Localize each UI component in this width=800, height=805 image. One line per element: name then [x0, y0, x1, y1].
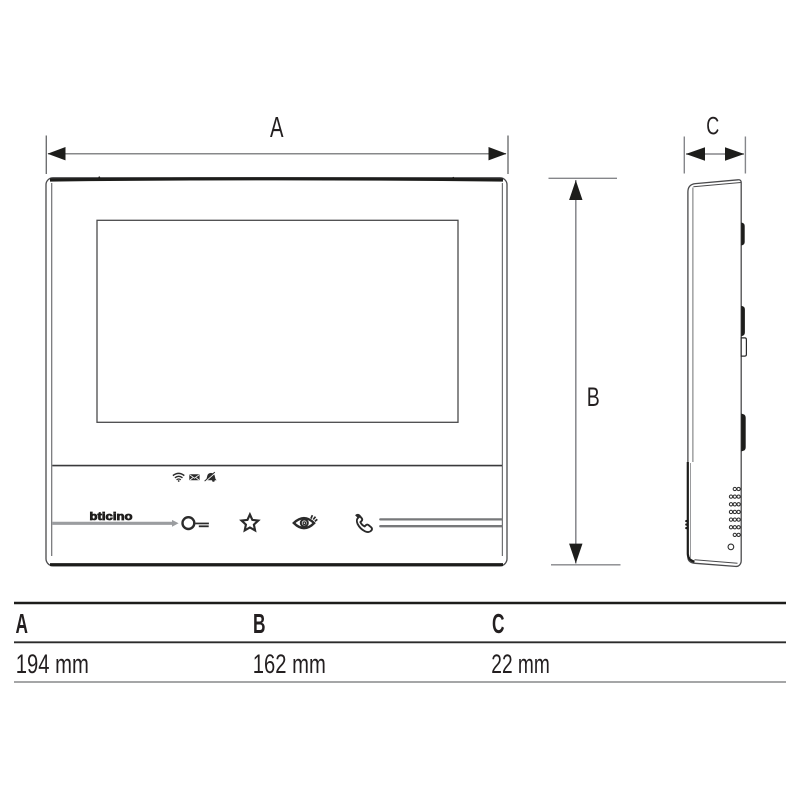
svg-text:C: C [492, 608, 505, 639]
svg-text:C: C [706, 113, 719, 141]
svg-text:B: B [253, 608, 266, 639]
svg-text:A: A [270, 112, 284, 144]
svg-text:B: B [587, 382, 600, 412]
svg-text:22 mm: 22 mm [491, 649, 550, 679]
svg-text:194 mm: 194 mm [16, 649, 89, 679]
svg-text:bticino: bticino [90, 511, 133, 523]
svg-text:162 mm: 162 mm [253, 649, 326, 679]
svg-text:A: A [16, 608, 29, 639]
